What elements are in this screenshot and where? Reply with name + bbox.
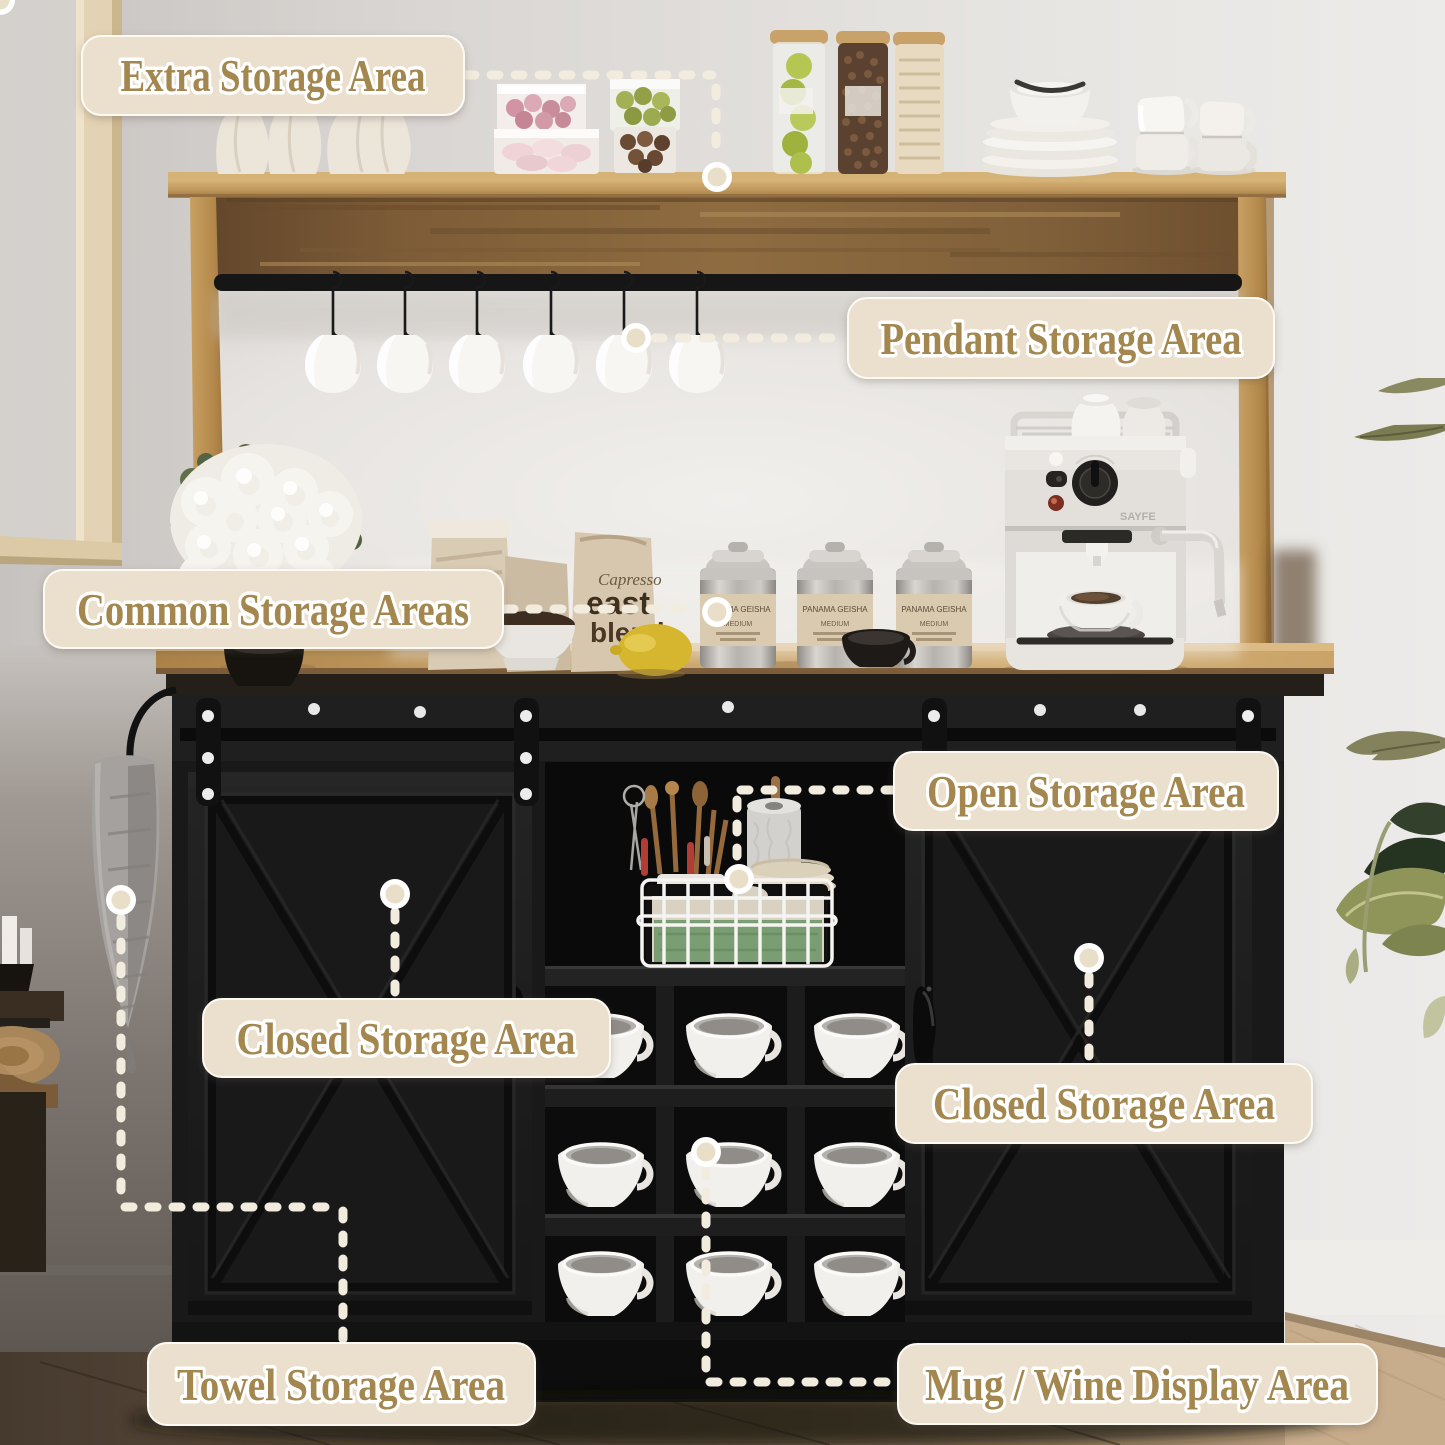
svg-text:Closed Storage Area: Closed Storage Area: [237, 1013, 576, 1064]
svg-text:Towel Storage Area: Towel Storage Area: [177, 1359, 505, 1410]
svg-text:Common Storage Areas: Common Storage Areas: [77, 584, 469, 635]
svg-text:Extra Storage Area: Extra Storage Area: [121, 50, 426, 101]
svg-text:Closed Storage Area: Closed Storage Area: [933, 1078, 1275, 1129]
svg-text:east: east: [586, 585, 650, 621]
svg-text:Open Storage Area: Open Storage Area: [927, 766, 1245, 817]
svg-text:Pendant Storage Area: Pendant Storage Area: [881, 313, 1242, 364]
svg-text:Mug / Wine Display Area: Mug / Wine Display Area: [925, 1359, 1349, 1410]
svg-text:SAYFE: SAYFE: [1120, 511, 1156, 523]
